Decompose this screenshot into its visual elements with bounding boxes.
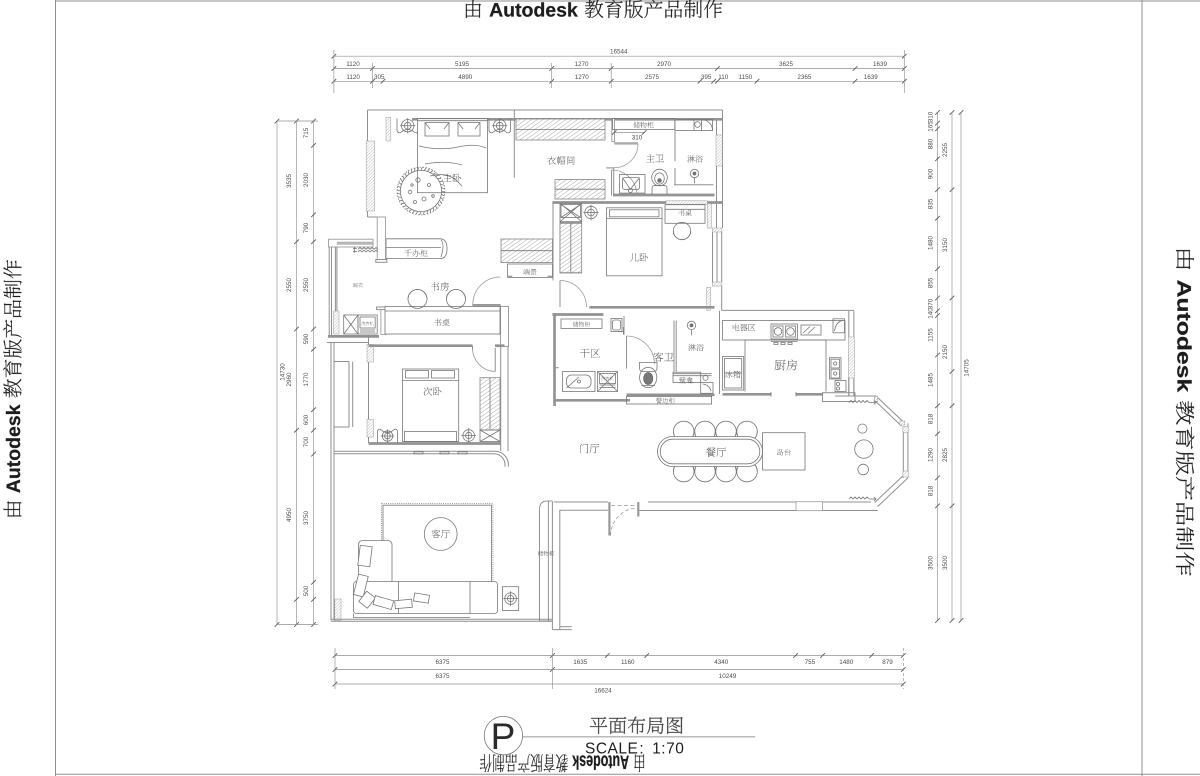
svg-text:1155: 1155	[928, 328, 935, 342]
svg-text:2550: 2550	[286, 278, 293, 293]
svg-text:110: 110	[718, 74, 729, 81]
svg-text:16624: 16624	[594, 688, 612, 695]
svg-text:P: P	[491, 716, 516, 757]
svg-text:SCALE:1:70: SCALE:1:70	[585, 741, 684, 758]
svg-text:3625: 3625	[779, 61, 794, 68]
svg-text:3750: 3750	[303, 511, 310, 526]
svg-text:1120: 1120	[346, 61, 360, 68]
svg-text:1120: 1120	[346, 74, 360, 81]
svg-text:2150: 2150	[942, 345, 949, 360]
svg-text:305: 305	[374, 74, 385, 81]
svg-text:16544: 16544	[610, 49, 628, 56]
svg-text:5195: 5195	[455, 61, 470, 68]
svg-text:818: 818	[928, 413, 935, 424]
svg-text:715: 715	[303, 127, 310, 138]
svg-text:2255: 2255	[942, 143, 949, 158]
svg-text:1639: 1639	[864, 74, 879, 81]
svg-text:310: 310	[928, 111, 935, 122]
svg-text:2030: 2030	[303, 173, 310, 188]
svg-text:310: 310	[632, 135, 643, 142]
svg-text:3500: 3500	[942, 556, 949, 571]
svg-text:140: 140	[928, 308, 935, 319]
svg-text:3150: 3150	[942, 238, 949, 253]
svg-text:1639: 1639	[873, 61, 888, 68]
svg-text:2575: 2575	[645, 74, 660, 81]
svg-text:2550: 2550	[303, 278, 310, 293]
svg-text:600: 600	[303, 414, 310, 425]
svg-text:6375: 6375	[435, 673, 450, 680]
svg-text:370: 370	[928, 298, 935, 309]
svg-text:1270: 1270	[575, 74, 590, 81]
svg-text:880: 880	[928, 138, 935, 149]
svg-text:2365: 2365	[797, 74, 812, 81]
svg-text:755: 755	[805, 659, 816, 666]
svg-text:1485: 1485	[928, 373, 935, 388]
svg-text:10249: 10249	[719, 673, 737, 680]
svg-text:1160: 1160	[621, 659, 635, 666]
svg-text:1770: 1770	[303, 372, 310, 387]
svg-text:2825: 2825	[942, 448, 949, 463]
svg-text:2960: 2960	[286, 372, 293, 387]
svg-text:3535: 3535	[286, 174, 293, 189]
svg-text:1270: 1270	[574, 61, 589, 68]
svg-text:1150: 1150	[739, 74, 753, 81]
svg-text:700: 700	[303, 436, 310, 447]
svg-text:818: 818	[928, 485, 935, 496]
svg-text:395: 395	[701, 74, 712, 81]
svg-text:855: 855	[928, 277, 935, 288]
svg-text:14705: 14705	[964, 359, 971, 377]
svg-text:1290: 1290	[928, 448, 935, 463]
svg-text:3500: 3500	[928, 556, 935, 571]
svg-text:2970: 2970	[657, 61, 672, 68]
svg-text:835: 835	[928, 198, 935, 209]
svg-text:900: 900	[928, 168, 935, 179]
svg-text:1480: 1480	[928, 236, 935, 251]
svg-text:790: 790	[303, 222, 310, 233]
svg-text:500: 500	[303, 585, 310, 596]
svg-text:165: 165	[928, 121, 935, 132]
svg-text:1480: 1480	[839, 659, 854, 666]
svg-text:1635: 1635	[573, 659, 588, 666]
svg-text:6375: 6375	[435, 659, 450, 666]
svg-text:4890: 4890	[458, 74, 473, 81]
svg-text:4950: 4950	[286, 508, 293, 523]
svg-text:879: 879	[882, 659, 893, 666]
svg-text:4340: 4340	[714, 659, 729, 666]
svg-text:590: 590	[303, 333, 310, 344]
